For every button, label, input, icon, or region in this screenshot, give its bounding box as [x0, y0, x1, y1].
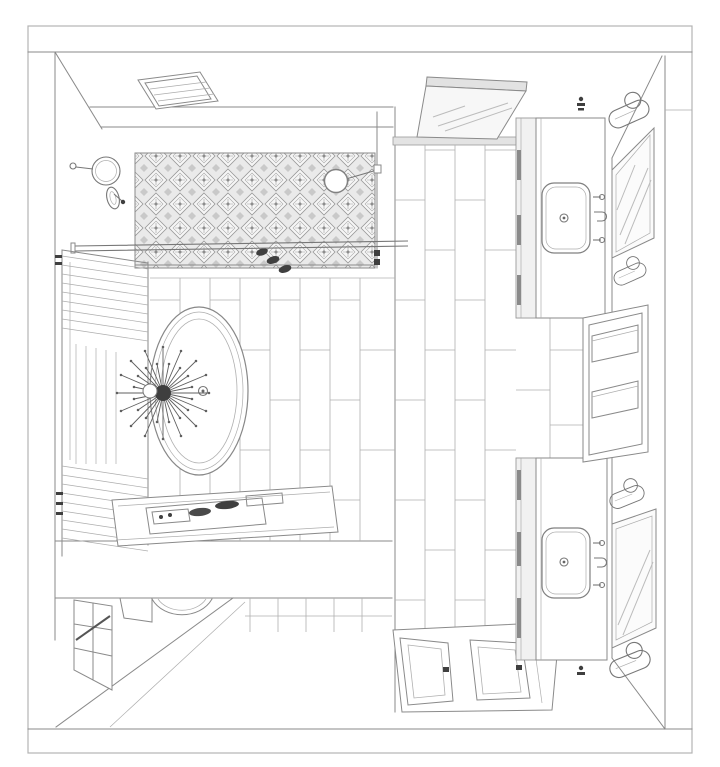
- towel-holder-4: [603, 639, 652, 681]
- bathroom-plan-drawing: [0, 0, 720, 767]
- bathroom-plan-figure: [0, 0, 720, 767]
- mirror-lower: [612, 509, 656, 648]
- toilet: [120, 598, 212, 622]
- lower-window: [74, 600, 112, 690]
- sink-lower: [542, 528, 590, 598]
- towel-holder-2: [608, 253, 648, 287]
- skylight: [138, 72, 218, 109]
- wall-niche: [583, 305, 648, 462]
- shower-door: [417, 77, 527, 139]
- wall-hook-upper: [577, 97, 585, 111]
- vanity-upper: [516, 118, 607, 318]
- shower-valve: [105, 186, 126, 210]
- towel-holder-3: [604, 475, 646, 510]
- sink-upper: [542, 183, 590, 253]
- towel-holder-1: [602, 88, 652, 131]
- mirror-upper: [612, 128, 654, 258]
- vanity-lower: [516, 458, 607, 660]
- magnifying-mirror: [70, 157, 120, 185]
- bench: [112, 486, 338, 546]
- wall-hook-lower: [577, 666, 585, 675]
